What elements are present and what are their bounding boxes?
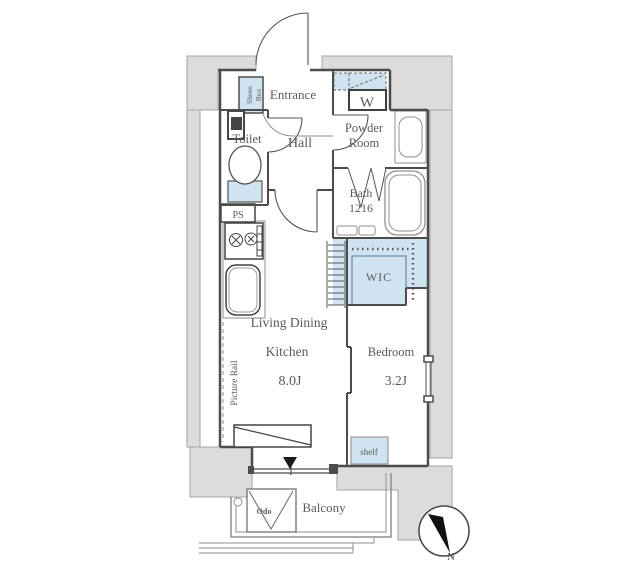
shelf-label: shelf [360, 447, 378, 457]
washer-label: W [360, 95, 375, 111]
washer-pan-left [334, 73, 349, 90]
outside-left-strip [187, 110, 200, 447]
ldk-label-2: Kitchen [266, 344, 309, 359]
sliding-partition [347, 305, 351, 466]
powder-room-label-2: Room [349, 136, 380, 150]
entrance-door [256, 13, 308, 65]
toilet-fixtures [228, 111, 261, 184]
wic-corner-notch [406, 288, 428, 305]
shoes-box-label-2: Box [254, 89, 263, 102]
toilet-label: Toilet [233, 132, 263, 146]
bedroom-window-cap-bottom [424, 396, 433, 402]
outside-left-pillar [190, 447, 252, 497]
compass: N [419, 506, 469, 563]
entrance-label: Entrance [270, 87, 316, 102]
picture-rail-label: Picture Rail [230, 360, 240, 405]
outside-right-strip [430, 110, 452, 458]
bedroom-label-2: 3.2J [385, 373, 407, 388]
bath-label-1: Bath [350, 186, 373, 200]
wic-label: WIC [366, 270, 392, 284]
kitchen-fixtures [221, 204, 265, 318]
water-heater-box [247, 489, 296, 532]
balcony-drain [234, 498, 242, 506]
balcony-label: Balcony [302, 500, 346, 515]
balcony-window [254, 467, 329, 475]
kitchen-sink [226, 265, 260, 315]
bath-counter-left [337, 226, 357, 235]
shoes-box-label-1: Shoes [245, 86, 254, 104]
balcony-outer-lines [199, 537, 391, 553]
bedroom-window-cap-top [424, 356, 433, 362]
floor-plan: N Entrance Shoes Box Hall Toilet Powder … [0, 0, 640, 569]
water-heater [247, 489, 296, 532]
powder-room-label-1: Powder [345, 121, 384, 135]
hall-label: Hall [288, 136, 312, 151]
compass-north-label: N [447, 552, 455, 563]
ldk-door [275, 190, 317, 232]
window-post-left [248, 466, 254, 474]
entrance-step [263, 114, 333, 136]
ldk-label-1: Living Dining [251, 315, 328, 330]
bath-label-2: 1216 [349, 201, 373, 215]
bedroom-label-1: Bedroom [368, 345, 415, 359]
water-heater-label: Odo [257, 507, 272, 516]
vanity [395, 111, 426, 163]
bath-counter-right [359, 226, 375, 235]
toilet-paper-holder-inner [231, 117, 242, 130]
ldk-label-3: 8.0J [279, 374, 303, 389]
window-post-right [329, 464, 338, 474]
pipe-space-label: PS [232, 210, 243, 221]
window-marker-triangle [283, 457, 297, 469]
bathtub [385, 171, 425, 235]
toilet-bowl [229, 146, 261, 184]
